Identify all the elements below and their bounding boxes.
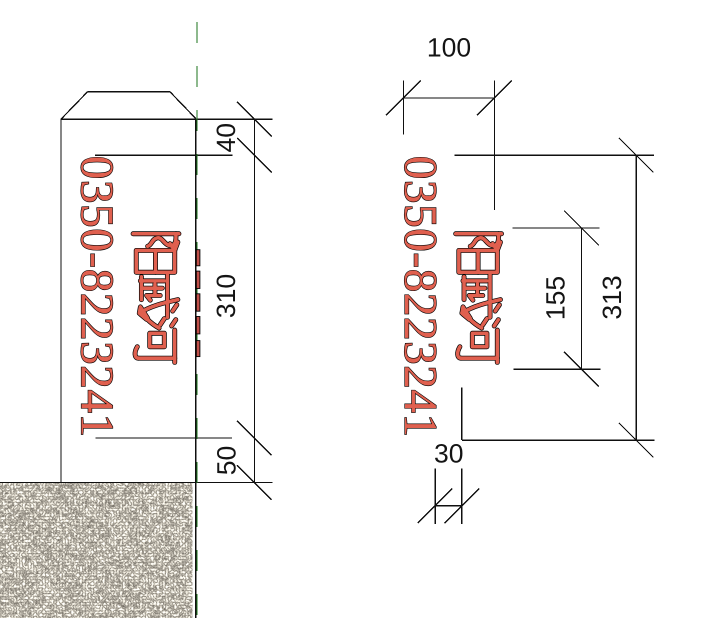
svg-text:155: 155 [540, 276, 570, 320]
svg-text:100: 100 [427, 33, 471, 63]
svg-text:50: 50 [212, 446, 242, 475]
svg-text:30: 30 [434, 439, 463, 469]
svg-text:0350-8223241: 0350-8223241 [71, 156, 123, 438]
svg-text:0350-8223241: 0350-8223241 [394, 156, 446, 438]
svg-text:313: 313 [597, 275, 627, 319]
svg-text:40: 40 [211, 123, 241, 152]
svg-text:310: 310 [211, 274, 241, 318]
